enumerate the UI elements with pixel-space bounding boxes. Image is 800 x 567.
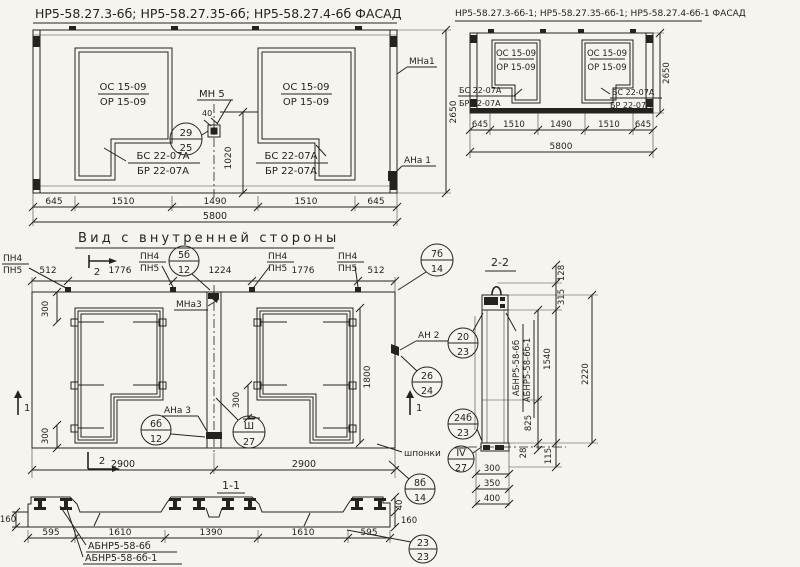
callout-top: IV — [456, 448, 466, 459]
dim: 645 — [635, 120, 651, 130]
dim-300-bottom-line — [53, 421, 61, 452]
callout-29-25-bottom: 25 — [180, 143, 193, 154]
dim-2650: 2650 — [662, 62, 672, 84]
pn-label-bottom: ПН5 — [268, 264, 287, 274]
dim-300: 300 — [41, 428, 51, 444]
dim: 1490 — [550, 120, 572, 130]
dim-300: 300 — [41, 301, 51, 317]
dim-40-160-right-lines — [391, 493, 399, 531]
section-2-2: 2-2 300 350 400 825 28 128 315 1540 115 … — [448, 256, 598, 508]
callout-top: 20 — [457, 332, 469, 343]
ana1-leader — [392, 166, 436, 176]
dim-128: 128 — [557, 265, 567, 281]
window2-anchor-plates — [254, 319, 356, 432]
callout-top: 7б — [431, 249, 443, 260]
dim-total: 5800 — [550, 142, 573, 152]
dim: 1390 — [200, 528, 223, 538]
ana1-label: АНа 1 — [404, 156, 431, 166]
pn-label-top: ПН4 — [338, 252, 358, 262]
mn5-size-label: 40 — [202, 109, 212, 118]
window1-anchor-plates — [71, 319, 166, 432]
inner-panel-outline — [32, 292, 395, 448]
dim: 645 — [367, 197, 384, 207]
dim-1800: 1800 — [363, 365, 373, 388]
callout-bottom: 14 — [414, 493, 426, 504]
callout-bottom: 12 — [178, 265, 190, 276]
dim-bottom-row — [28, 466, 399, 474]
channel-section-icons — [34, 498, 386, 510]
lifting-loop-icon — [69, 26, 362, 30]
pn-label-bottom: ПН5 — [338, 264, 357, 274]
dim: 1510 — [112, 197, 135, 207]
abnr-label: АБНР5-58-6б — [88, 541, 151, 552]
sill-mark-bottom: БР 22-07А — [610, 101, 652, 110]
dim-2650-ext — [397, 30, 451, 193]
dim: 1510 — [503, 120, 525, 130]
shponki-label: шпонки — [404, 449, 441, 459]
dim-1540: 1540 — [543, 348, 553, 370]
dim-825: 825 — [524, 415, 534, 431]
callout-bottom: 27 — [243, 437, 255, 448]
arrow-icon — [406, 390, 414, 398]
inner-view: ПН4 ПН5 ПН4 ПН5 ПН4 ПН5 ПН4 ПН5 512 1776… — [2, 244, 453, 504]
drawing-sheet: НР5-58.27.3-6б; НР5-58.27.35-6б; НР5-58.… — [0, 0, 800, 567]
dim-1020: 1020 — [224, 146, 234, 169]
dim: 1610 — [109, 528, 132, 538]
facade-left-panel-outline — [33, 30, 397, 193]
callout-bottom: 23 — [457, 428, 469, 439]
section-marker-1-label: 1 — [24, 403, 30, 414]
pn-label-bottom: ПН5 — [3, 266, 22, 276]
dim-ext-lines — [32, 277, 395, 292]
dim-300: 300 — [232, 392, 242, 408]
callout-top: 23 — [417, 538, 429, 549]
callout-bottom: 14 — [431, 264, 443, 275]
dim: 1610 — [292, 528, 315, 538]
sill-mark-top: БС 22-07А — [459, 86, 502, 95]
sill1-mark-bottom: БР 22-07А — [137, 166, 189, 177]
section-marker-1-label: 1 — [416, 403, 422, 414]
mna1-label: МНа1 — [409, 57, 435, 67]
facade-left-panel-edges — [33, 35, 397, 186]
dim-2650: 2650 — [449, 100, 459, 123]
callout-bottom: 24 — [421, 386, 433, 397]
dim-2220: 2220 — [581, 363, 591, 385]
section-2-2-title: 2-2 — [491, 256, 509, 269]
window-mark-bottom: ОР 15-09 — [496, 63, 535, 73]
facade-left-end-ribs — [40, 30, 390, 193]
dim-115: 115 — [544, 448, 554, 464]
lifting-loop-icon — [488, 29, 636, 33]
abnr-label-rotated: АБНР5-58-6б — [512, 340, 522, 396]
facade-right-title: НР5-58.27.3-6б-1; НР5-58.27.35-6б-1; НР5… — [455, 9, 746, 19]
dim: 645 — [472, 120, 488, 130]
dim: 350 — [484, 479, 500, 489]
lifting-hook-icon — [492, 287, 501, 295]
callout-29-25-top: 29 — [180, 128, 193, 139]
dim-total: 5800 — [203, 211, 227, 222]
sill2-mark-bottom: БР 22-07А — [265, 166, 317, 177]
dim: 1490 — [204, 197, 227, 207]
mna3-label: МНа3 — [176, 300, 202, 310]
callout-top: 8б — [414, 478, 426, 489]
body-inner-lines — [475, 310, 508, 443]
pn-label-bottom: ПН5 — [140, 264, 159, 274]
dim: 300 — [484, 464, 500, 474]
window-mark-bottom: ОР 15-09 — [587, 63, 626, 73]
window1-mark-bottom: ОР 15-09 — [100, 97, 146, 108]
callout-bottom: 23 — [457, 347, 469, 358]
dim: 1776 — [109, 266, 132, 276]
dim: 2900 — [292, 459, 316, 470]
pn-label-top: ПН4 — [268, 252, 288, 262]
section-1-1-title: 1-1 — [222, 479, 240, 492]
facade-left-title: НР5-58.27.3-6б; НР5-58.27.35-6б; НР5-58.… — [35, 6, 402, 21]
sill-mark-bottom: БР 22-07А — [459, 99, 501, 108]
abnr1-label-rotated: АБНР5-58-6б-1 — [523, 338, 533, 403]
section-1-1-profile — [28, 497, 390, 527]
callout-top: 6б — [150, 419, 162, 430]
an2-label: АН 2 — [418, 331, 440, 341]
mn5-label: МН 5 — [199, 89, 225, 100]
window1-mark-top: ОС 15-09 — [99, 82, 146, 93]
foot-core-marks — [483, 445, 504, 450]
section-marker-2-label: 2 — [94, 267, 100, 278]
window-mark-top: ОС 15-09 — [496, 49, 536, 59]
dim: 645 — [45, 197, 62, 207]
cap-connector-core — [484, 297, 505, 308]
ana3-label: АНа 3 — [164, 406, 191, 416]
dim: 1510 — [598, 120, 620, 130]
dim: 1510 — [295, 197, 318, 207]
pn-label-top: ПН4 — [140, 252, 160, 262]
dim-160-left: 160 — [0, 515, 16, 525]
dim: 1776 — [292, 266, 315, 276]
dim-300-top-line — [53, 288, 61, 326]
callout-7b-14-leader — [398, 260, 453, 290]
facade-right: НР5-58.27.3-6б-1; НР5-58.27.35-6б-1; НР5… — [455, 9, 746, 158]
ana1-anchor-icon — [388, 171, 397, 181]
dim: 512 — [39, 266, 56, 276]
joint-key-and-break-marks — [94, 508, 310, 526]
window2-mark-bottom: ОР 15-09 — [283, 97, 329, 108]
an2-leader — [400, 341, 448, 350]
dim: 512 — [367, 266, 384, 276]
window-mark-top: ОС 15-09 — [587, 49, 627, 59]
sill-mark-top: БС 22-07А — [612, 88, 655, 97]
dim: 400 — [484, 494, 500, 504]
inner-view-title: Вид с внутренней стороны — [78, 231, 339, 246]
dim-40-right: 40 — [395, 500, 405, 511]
an2-anchor-icon — [391, 344, 399, 356]
arrow-icon — [14, 390, 22, 398]
callout-8b-14-leader — [389, 461, 435, 489]
facade-left: НР5-58.27.3-6б; НР5-58.27.35-6б; НР5-58.… — [29, 6, 459, 248]
sill2-mark-top: БС 22-07А — [265, 151, 318, 162]
arrow-icon — [109, 258, 117, 264]
dim-line-a — [534, 306, 542, 454]
dim-315: 315 — [557, 289, 567, 305]
section-marker-2-label: 2 — [99, 456, 105, 467]
callout-top: Ш — [244, 421, 254, 432]
dim: 595 — [42, 528, 59, 538]
callout-bottom: 12 — [150, 434, 162, 445]
drawing-canvas: НР5-58.27.3-6б; НР5-58.27.35-6б; НР5-58.… — [0, 0, 800, 567]
window2-mark-top: ОС 15-09 — [282, 82, 329, 93]
anchor-point-marks — [65, 287, 361, 292]
inner-window-2 — [257, 308, 353, 443]
callout-top: 24б — [454, 413, 472, 424]
callout-bottom: 27 — [455, 463, 467, 474]
rib-anchor-marks — [33, 36, 397, 190]
dim-top-row — [28, 277, 399, 285]
callout-bottom: 23 — [417, 552, 429, 563]
dim: 1224 — [209, 266, 232, 276]
dim-28: 28 — [519, 448, 529, 459]
dim-160-right: 160 — [401, 516, 417, 526]
callout-top: 26 — [421, 371, 433, 382]
section-1-1: 1-1 160 40 160 595 1610 1390 1610 595 АБ… — [0, 479, 437, 564]
pn-label-top: ПН4 — [3, 254, 23, 264]
dim-ext-lines — [32, 448, 395, 478]
callout-top: 5б — [178, 250, 190, 261]
ana3-connector-icon — [206, 432, 222, 439]
abnr1-label: АБНР5-58-6б-1 — [85, 553, 157, 564]
mna1-leader — [397, 67, 437, 74]
